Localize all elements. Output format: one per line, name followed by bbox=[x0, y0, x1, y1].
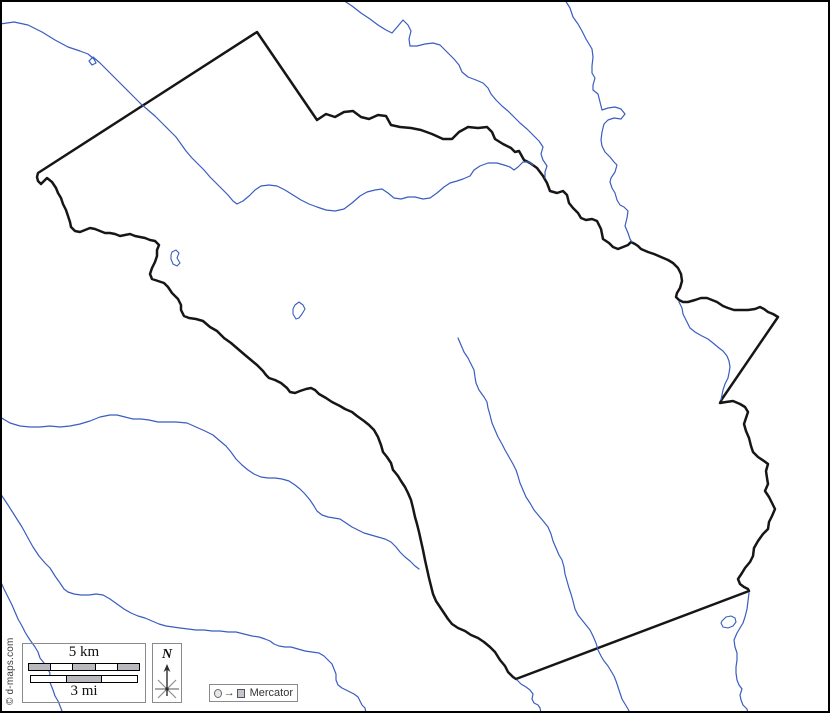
km-bar-segment-3 bbox=[73, 664, 95, 670]
mi-bar-segment-3 bbox=[102, 676, 137, 682]
lake-small-west bbox=[171, 250, 180, 266]
arrow-right-icon: → bbox=[224, 688, 235, 698]
river-east bbox=[734, 593, 749, 713]
km-bar-segment-2 bbox=[51, 664, 73, 670]
km-bar-segment-4 bbox=[96, 664, 118, 670]
county-boundary bbox=[37, 32, 778, 679]
scale-box: 5 km 3 mi bbox=[22, 643, 146, 703]
river-vertex-stub bbox=[517, 680, 541, 713]
scale-bar-km bbox=[28, 663, 140, 671]
lake-small-center bbox=[293, 302, 305, 319]
map-canvas bbox=[0, 0, 830, 713]
river-northwest bbox=[0, 22, 533, 211]
projection-label: Mercator bbox=[250, 687, 293, 699]
compass-icon bbox=[153, 663, 181, 699]
river-top-right bbox=[565, 0, 632, 242]
globe-circle-icon bbox=[214, 689, 222, 698]
north-box: N bbox=[152, 643, 182, 703]
scale-mi-label: 3 mi bbox=[23, 683, 145, 700]
lake-small-east bbox=[721, 616, 736, 628]
river-wedge bbox=[679, 302, 730, 400]
copyright-text: © d-maps.com bbox=[5, 637, 16, 705]
north-label: N bbox=[153, 647, 181, 663]
mi-bar-segment-2 bbox=[67, 676, 103, 682]
mi-bar-segment-1 bbox=[31, 676, 67, 682]
scale-km-label: 5 km bbox=[23, 644, 145, 661]
scale-bar-mi bbox=[30, 675, 138, 683]
projected-square-icon bbox=[237, 689, 245, 698]
river-west-mid bbox=[0, 415, 419, 569]
km-bar-segment-5 bbox=[118, 664, 139, 670]
km-bar-segment-1 bbox=[29, 664, 51, 670]
projection-box: → Mercator bbox=[209, 684, 298, 702]
map-stage: 5 km 3 mi N → Mercator © d-maps.com bbox=[0, 0, 830, 713]
river-central bbox=[458, 338, 630, 713]
